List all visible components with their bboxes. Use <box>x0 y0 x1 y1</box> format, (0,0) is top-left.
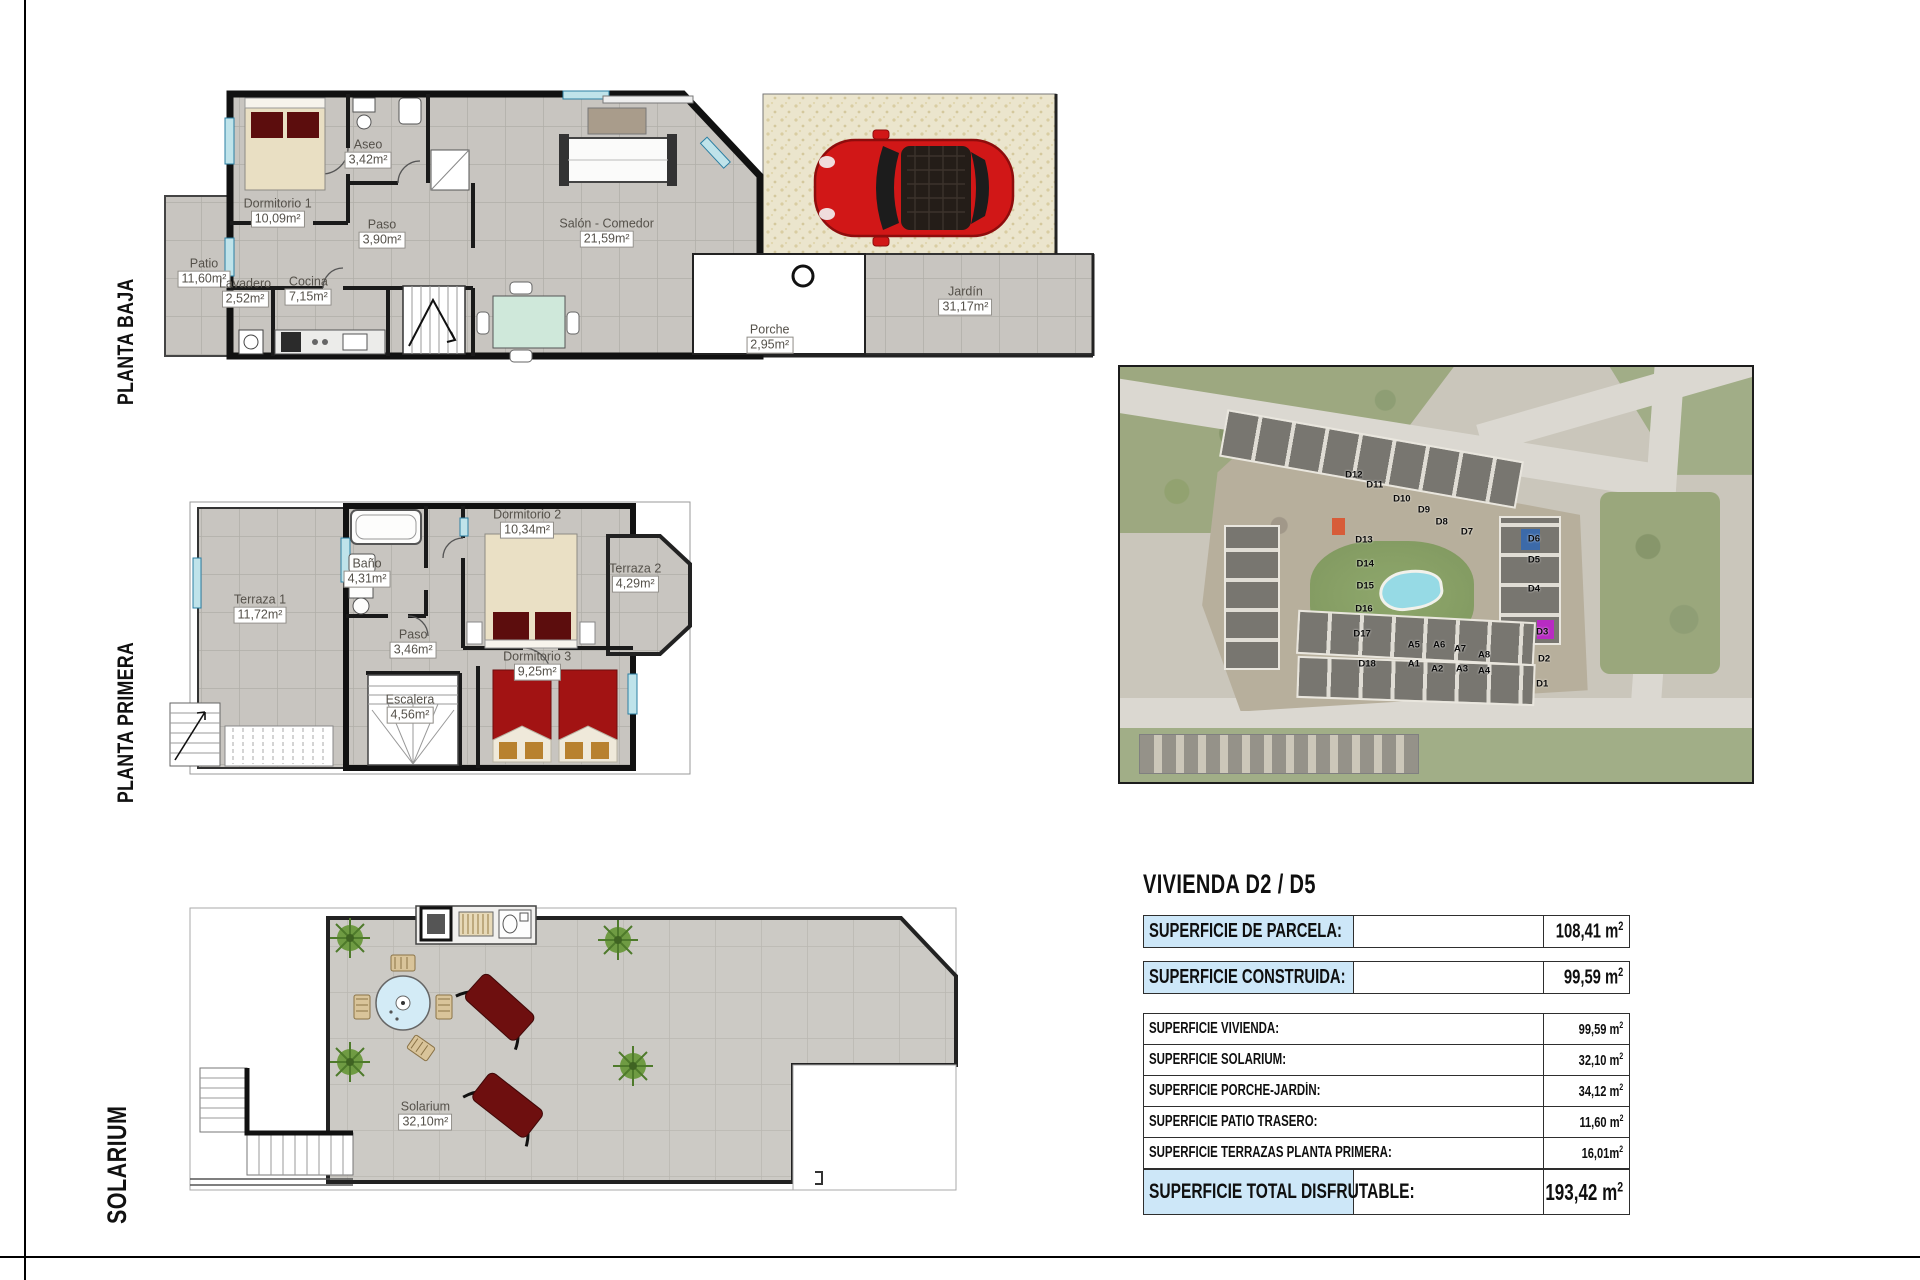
solarium-plan: Solarium32,10m² <box>163 900 963 1195</box>
row-superficie-construida: SUPERFICIE CONSTRUIDA: 99,59 m2 <box>1143 961 1630 994</box>
site-unit-labels: D12 D11 D10 D9 D8 D7 D13 D14 D15 D16 D17 <box>1120 367 1752 782</box>
room-label: Dormitorio 210,34m² <box>493 508 561 539</box>
site-unit-label: A8 <box>1478 650 1490 661</box>
room-label: Aseo3,42m² <box>345 138 392 169</box>
summary-title: VIVIENDA D2 / D5 <box>1143 868 1630 901</box>
site-unit-label: D16 <box>1355 603 1372 614</box>
room-label: Paso3,90m² <box>359 218 406 249</box>
row-total-disfrutable: SUPERFICIE TOTAL DISFRUTABLE: 193,42 m2 <box>1143 1169 1630 1215</box>
planta-baja-plan: Dormitorio 110,09m² Aseo3,42m² Paso3,90m… <box>163 88 1095 380</box>
site-unit-label: D4 <box>1528 584 1540 595</box>
row-value: 11,60 m2 <box>1544 1107 1629 1137</box>
plan-sheet: PLANTA BAJA <box>0 0 1920 1280</box>
site-unit-label: D7 <box>1461 527 1473 538</box>
site-unit-label: A7 <box>1454 644 1466 655</box>
row-label: SUPERFICIE DE PARCELA: <box>1144 916 1354 947</box>
room-label: Jardín31,17m² <box>939 285 993 316</box>
row-spacer <box>1354 962 1544 993</box>
site-unit-label: D8 <box>1436 516 1448 527</box>
page-frame-bottom <box>0 1256 1920 1258</box>
row-label: SUPERFICIE PORCHE-JARDÍN: <box>1144 1076 1544 1106</box>
site-unit-label: D5 <box>1528 554 1540 565</box>
row-value: 108,41 m2 <box>1544 916 1629 947</box>
room-label: Porche2,95m² <box>746 323 793 354</box>
row-value: 99,59 m2 <box>1544 1014 1629 1044</box>
site-unit-label: A1 <box>1408 659 1420 670</box>
row-label: SUPERFICIE SOLARIUM: <box>1144 1045 1544 1075</box>
room-label: Escalera4,56m² <box>386 693 435 724</box>
detail-row: SUPERFICIE TERRAZAS PLANTA PRIMERA: 16,0… <box>1144 1138 1629 1169</box>
planta-baja-room-labels: Dormitorio 110,09m² Aseo3,42m² Paso3,90m… <box>163 88 1095 380</box>
row-value: 193,42 m2 <box>1544 1170 1629 1214</box>
room-label: Dormitorio 39,25m² <box>503 650 571 681</box>
site-unit-label: D1 <box>1536 679 1548 690</box>
site-unit-label: A6 <box>1433 640 1445 651</box>
site-unit-label: D3 <box>1536 627 1548 638</box>
site-aerial-photo: D12 D11 D10 D9 D8 D7 D13 D14 D15 D16 D17 <box>1118 365 1754 784</box>
site-unit-label: D18 <box>1358 659 1375 670</box>
room-label: Salón - Comedor21,59m² <box>559 217 654 248</box>
site-unit-label: A3 <box>1456 664 1468 675</box>
row-label: SUPERFICIE TOTAL DISFRUTABLE: <box>1144 1170 1354 1214</box>
surface-summary: VIVIENDA D2 / D5 SUPERFICIE DE PARCELA: … <box>1143 868 1630 1215</box>
row-value: 99,59 m2 <box>1544 962 1629 993</box>
room-label: Paso3,46m² <box>390 628 437 659</box>
site-unit-label: D17 <box>1353 628 1370 639</box>
planta-baja-label: PLANTA BAJA <box>113 278 139 405</box>
site-unit-label: D9 <box>1418 505 1430 516</box>
detail-rows: SUPERFICIE VIVIENDA: 99,59 m2 SUPERFICIE… <box>1143 1013 1630 1169</box>
site-unit-label: D11 <box>1366 479 1383 490</box>
site-unit-label: D6 <box>1528 533 1540 544</box>
detail-row: SUPERFICIE VIVIENDA: 99,59 m2 <box>1144 1014 1629 1045</box>
room-label: Solarium32,10m² <box>398 1100 452 1131</box>
row-label: SUPERFICIE TERRAZAS PLANTA PRIMERA: <box>1144 1138 1544 1168</box>
detail-row: SUPERFICIE SOLARIUM: 32,10 m2 <box>1144 1045 1629 1076</box>
room-label: Lavadero2,52m² <box>219 277 271 308</box>
site-unit-label: D2 <box>1538 654 1550 665</box>
detail-row: SUPERFICIE PATIO TRASERO: 11,60 m2 <box>1144 1107 1629 1138</box>
planta-primera-room-labels: Terraza 111,72m² Baño4,31m² Dormitorio 2… <box>163 498 693 778</box>
room-label: Terraza 24,29m² <box>609 562 661 593</box>
detail-row: SUPERFICIE PORCHE-JARDÍN: 34,12 m2 <box>1144 1076 1629 1107</box>
site-unit-label: A5 <box>1408 640 1420 651</box>
row-value: 32,10 m2 <box>1544 1045 1629 1075</box>
solarium-label: SOLARIUM <box>102 1106 133 1224</box>
row-label: SUPERFICIE CONSTRUIDA: <box>1144 962 1354 993</box>
row-value: 34,12 m2 <box>1544 1076 1629 1106</box>
row-label: SUPERFICIE VIVIENDA: <box>1144 1014 1544 1044</box>
room-label: Cocina7,15m² <box>285 275 332 306</box>
site-unit-label: D15 <box>1356 581 1373 592</box>
planta-primera-plan: Terraza 111,72m² Baño4,31m² Dormitorio 2… <box>163 498 693 778</box>
row-label: SUPERFICIE PATIO TRASERO: <box>1144 1107 1544 1137</box>
planta-primera-label: PLANTA PRIMERA <box>113 642 139 803</box>
row-spacer <box>1354 916 1544 947</box>
site-unit-label: D14 <box>1356 559 1373 570</box>
row-superficie-parcela: SUPERFICIE DE PARCELA: 108,41 m2 <box>1143 915 1630 948</box>
page-frame-left <box>24 0 26 1280</box>
room-label: Terraza 111,72m² <box>234 593 287 624</box>
site-unit-label: D13 <box>1355 535 1372 546</box>
room-label: Baño4,31m² <box>344 557 391 588</box>
site-unit-label: D10 <box>1393 493 1410 504</box>
row-value: 16,01m2 <box>1544 1138 1629 1168</box>
site-unit-label: A4 <box>1478 666 1490 677</box>
site-unit-label: A2 <box>1431 664 1443 675</box>
room-label: Dormitorio 110,09m² <box>244 197 312 228</box>
site-unit-label: D12 <box>1345 469 1362 480</box>
solarium-room-labels: Solarium32,10m² <box>163 900 963 1195</box>
